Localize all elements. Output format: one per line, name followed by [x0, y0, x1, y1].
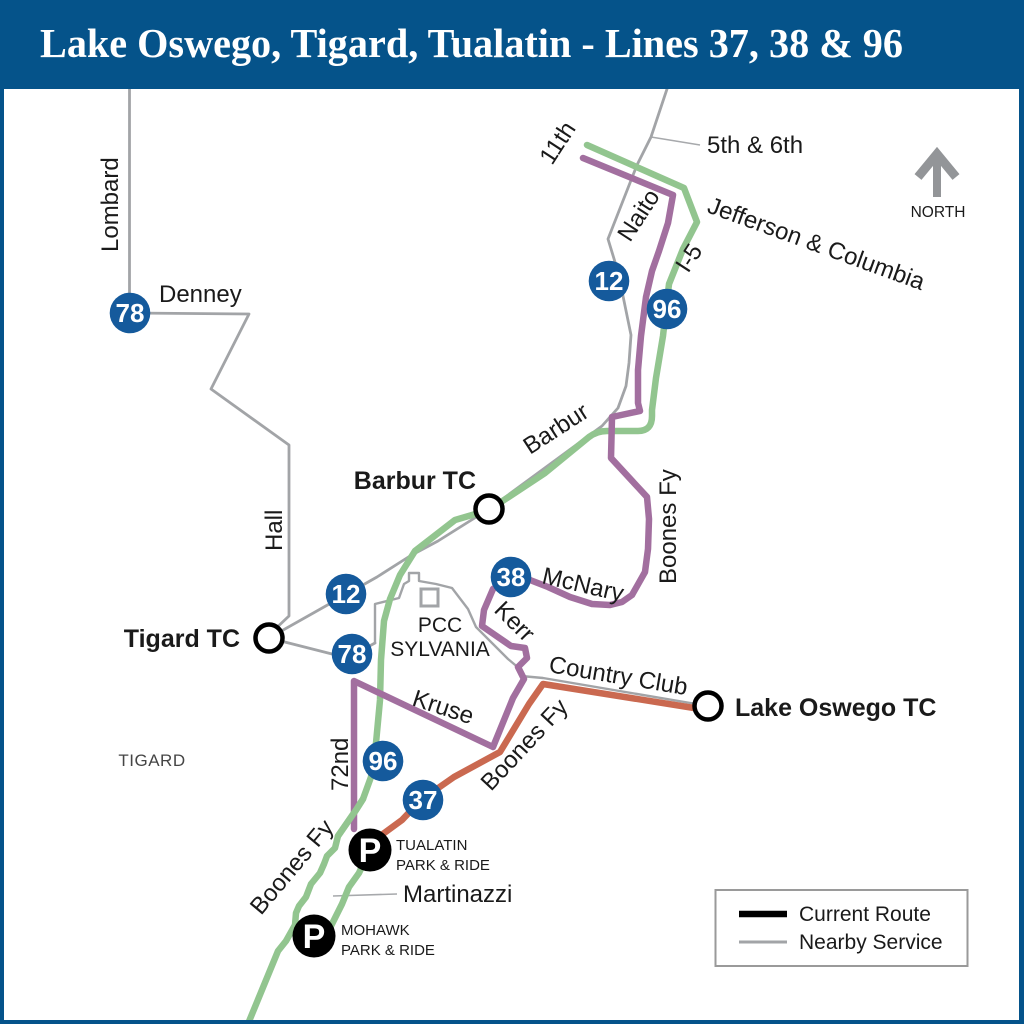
svg-text:TIGARD: TIGARD	[118, 751, 185, 770]
svg-text:P: P	[359, 832, 382, 870]
svg-text:78: 78	[338, 639, 367, 669]
svg-text:Lombard: Lombard	[97, 157, 124, 252]
svg-text:Current Route: Current Route	[799, 903, 931, 926]
svg-text:12: 12	[332, 579, 361, 609]
svg-text:72nd: 72nd	[327, 738, 354, 791]
svg-text:NORTH: NORTH	[911, 204, 966, 221]
svg-text:38: 38	[497, 562, 526, 592]
svg-text:Tigard TC: Tigard TC	[124, 625, 240, 653]
svg-text:Boones Fy: Boones Fy	[655, 469, 682, 584]
svg-text:Hall: Hall	[261, 510, 288, 551]
svg-text:5th & 6th: 5th & 6th	[707, 132, 803, 159]
svg-text:12: 12	[595, 266, 624, 296]
svg-text:PARK & RIDE: PARK & RIDE	[396, 857, 490, 874]
svg-text:PARK & RIDE: PARK & RIDE	[341, 942, 435, 959]
svg-text:P: P	[303, 918, 326, 956]
svg-text:Lake Oswego TC: Lake Oswego TC	[735, 694, 936, 722]
svg-text:78: 78	[116, 298, 145, 328]
svg-text:Denney: Denney	[159, 281, 242, 308]
svg-text:Martinazzi: Martinazzi	[403, 881, 512, 908]
svg-text:TUALATIN: TUALATIN	[396, 837, 467, 854]
svg-text:Nearby Service: Nearby Service	[799, 931, 943, 954]
svg-text:PCC: PCC	[418, 614, 462, 637]
svg-text:37: 37	[409, 785, 438, 815]
svg-text:Lake Oswego, Tigard, Tualatin: Lake Oswego, Tigard, Tualatin - Lines 37…	[40, 20, 903, 66]
svg-text:96: 96	[653, 294, 682, 324]
svg-text:SYLVANIA: SYLVANIA	[390, 638, 490, 661]
svg-text:96: 96	[369, 746, 398, 776]
svg-text:Barbur TC: Barbur TC	[354, 467, 476, 495]
svg-text:MOHAWK: MOHAWK	[341, 922, 410, 939]
